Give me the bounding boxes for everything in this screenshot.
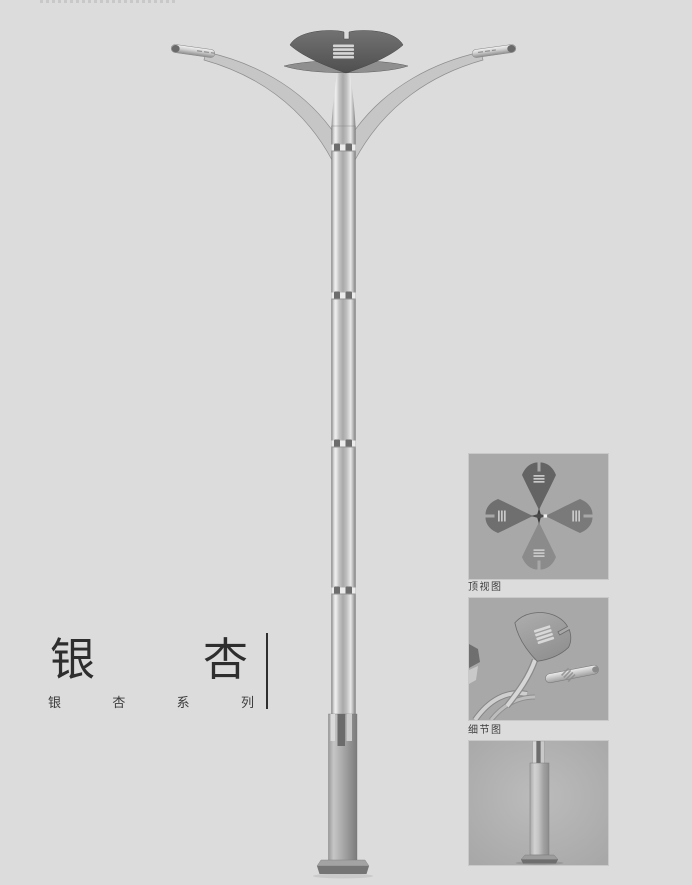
base-slot-center	[338, 714, 346, 746]
base-plate-top	[317, 860, 369, 866]
base-plate-front	[317, 866, 369, 874]
detail-view-label: 细节图	[468, 725, 609, 737]
detail-view-illustration	[469, 598, 608, 720]
base-slot-left	[331, 714, 336, 741]
title-divider	[266, 633, 268, 709]
base-view-illustration	[469, 741, 608, 865]
title-char-2: 杏	[203, 636, 248, 683]
lamp-stem	[332, 73, 356, 126]
detail-view-panel	[468, 597, 609, 721]
inset-top-view: 顶视图	[468, 453, 609, 594]
base-shadow	[313, 874, 373, 879]
inset-detail-view: 细节图	[468, 597, 609, 737]
title-char-1: 银	[50, 636, 95, 683]
subtitle-char-4: 列	[241, 692, 254, 711]
base-view-panel	[468, 740, 609, 866]
inset-base-view	[468, 740, 609, 868]
subtitle-char-3: 系	[177, 692, 190, 711]
base-slot-right	[347, 714, 353, 741]
right-lamp-head	[472, 44, 517, 58]
product-title: 银 杏	[50, 636, 248, 683]
subtitle-char-1: 银	[48, 692, 61, 711]
top-view-label: 顶视图	[468, 582, 609, 594]
top-view-illustration	[469, 454, 608, 579]
subtitle-char-2: 杏	[112, 692, 125, 711]
left-lamp-head	[171, 44, 216, 58]
pole	[332, 126, 356, 715]
top-view-panel	[468, 453, 609, 580]
catalog-page: 银 杏 银 杏 系 列	[0, 0, 692, 885]
product-series-subtitle: 银 杏 系 列	[48, 692, 254, 711]
